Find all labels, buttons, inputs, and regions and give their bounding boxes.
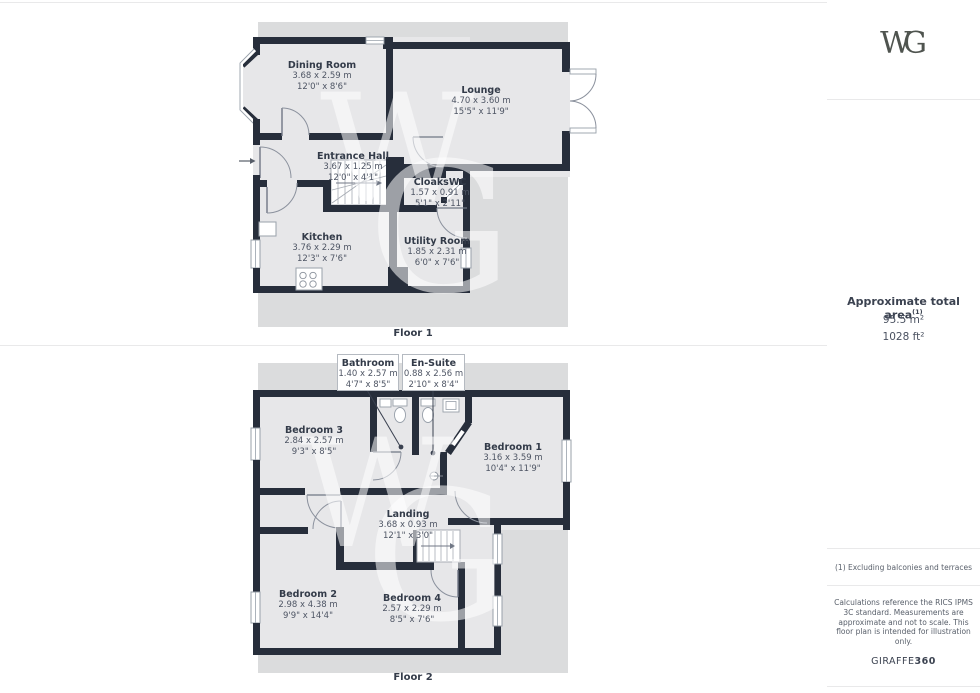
floor1-label: Floor 1: [258, 328, 568, 339]
divider: [827, 548, 980, 549]
sink-icon: [443, 399, 459, 412]
room-label-utility-room: Utility Room 1.85 x 2.31 m 6'0" x 7'6": [404, 236, 470, 268]
room-label-dining-room: Dining Room 3.68 x 2.59 m 12'0" x 8'6": [288, 60, 356, 92]
sidebar: WG Approximate total area(1) 95.5 m² 102…: [827, 0, 980, 693]
callout-en-suite: En-Suite 0.88 x 2.56 m 2'10" x 8'4": [402, 354, 465, 391]
area-ft2: 1028 ft²: [827, 331, 980, 343]
counter-icon: [259, 222, 276, 236]
room-label-bedroom-3: Bedroom 3 2.84 x 2.57 m 9'3" x 8'5": [284, 425, 343, 457]
divider: [0, 345, 827, 346]
room-label-kitchen: Kitchen 3.76 x 2.29 m 12'3" x 7'6": [292, 232, 351, 264]
sink-icon: [380, 399, 391, 407]
disclaimer-text: Calculations reference the RICS IPMS 3C …: [834, 598, 973, 647]
toilet-icon: [393, 399, 407, 423]
room-label-landing: Landing 3.68 x 0.93 m 12'1" x 3'0": [378, 509, 437, 541]
room-label-bedroom-4: Bedroom 4 2.57 x 2.29 m 8'5" x 7'6": [382, 593, 441, 625]
room-label-entrance-hall: Entrance Hall 3.67 x 1.25 m 12'0" x 4'1": [317, 151, 389, 183]
floor2-label: Floor 2: [258, 672, 568, 683]
divider: [827, 686, 980, 687]
footnote-text: (1) Excluding balconies and terraces: [834, 563, 973, 573]
divider: [827, 99, 980, 100]
hob-icon: [296, 268, 322, 290]
wg-logo: WG: [827, 26, 980, 61]
floorplan-page: { "watermark": {"w": "W", "g": "G"}, "fl…: [0, 0, 980, 693]
french-doors-icon: [570, 69, 596, 133]
logo-letter-g: G: [903, 26, 927, 61]
giraffe360-brand: GIRAFFE360: [827, 656, 980, 667]
area-m2: 95.5 m²: [827, 314, 980, 326]
room-label-cloakswc: CloaksWC 1.57 x 0.91 m 5'1" x 2'11": [410, 177, 469, 209]
room-label-bedroom-2: Bedroom 2 2.98 x 4.38 m 9'9" x 14'4": [278, 589, 337, 621]
divider: [827, 585, 980, 586]
room-label-lounge: Lounge 4.70 x 3.60 m 15'5" x 11'9": [451, 85, 510, 117]
callout-bathroom: Bathroom 1.40 x 2.57 m 4'7" x 8'5": [337, 354, 399, 391]
room-label-bedroom-1: Bedroom 1 3.16 x 3.59 m 10'4" x 11'9": [483, 442, 542, 474]
